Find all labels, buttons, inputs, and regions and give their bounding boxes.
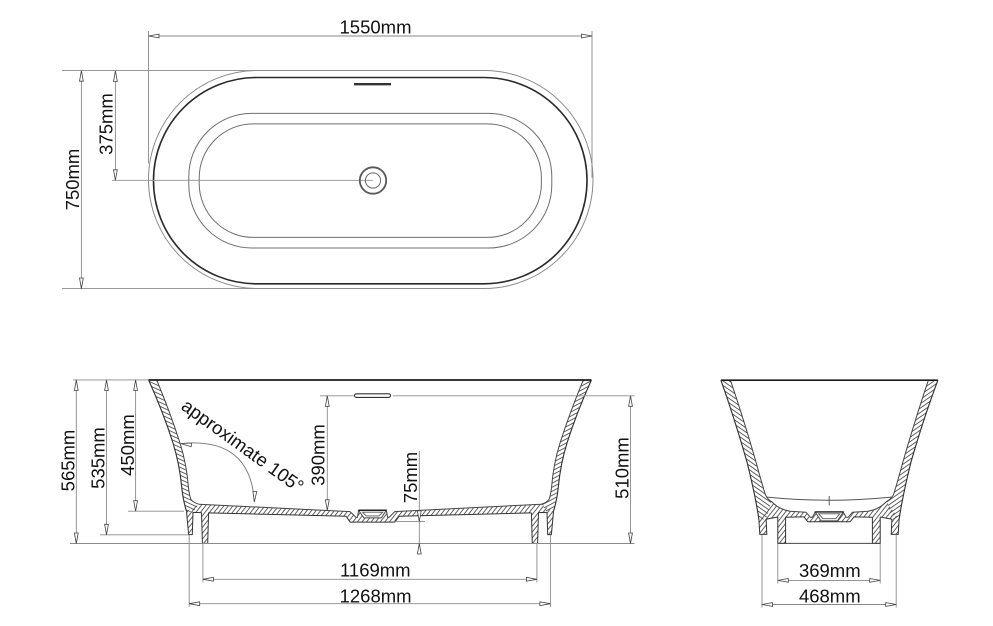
svg-text:1550mm: 1550mm — [340, 17, 412, 38]
svg-text:75mm: 75mm — [400, 452, 421, 503]
svg-text:535mm: 535mm — [88, 427, 109, 489]
svg-text:1268mm: 1268mm — [340, 586, 412, 607]
svg-text:565mm: 565mm — [57, 430, 78, 492]
svg-text:1169mm: 1169mm — [340, 560, 411, 581]
svg-text:450mm: 450mm — [117, 414, 138, 476]
svg-text:468mm: 468mm — [799, 586, 861, 607]
svg-text:369mm: 369mm — [799, 560, 861, 581]
svg-text:510mm: 510mm — [611, 437, 632, 499]
svg-text:750mm: 750mm — [62, 149, 83, 211]
svg-text:390mm: 390mm — [308, 424, 329, 486]
svg-text:375mm: 375mm — [96, 93, 117, 155]
